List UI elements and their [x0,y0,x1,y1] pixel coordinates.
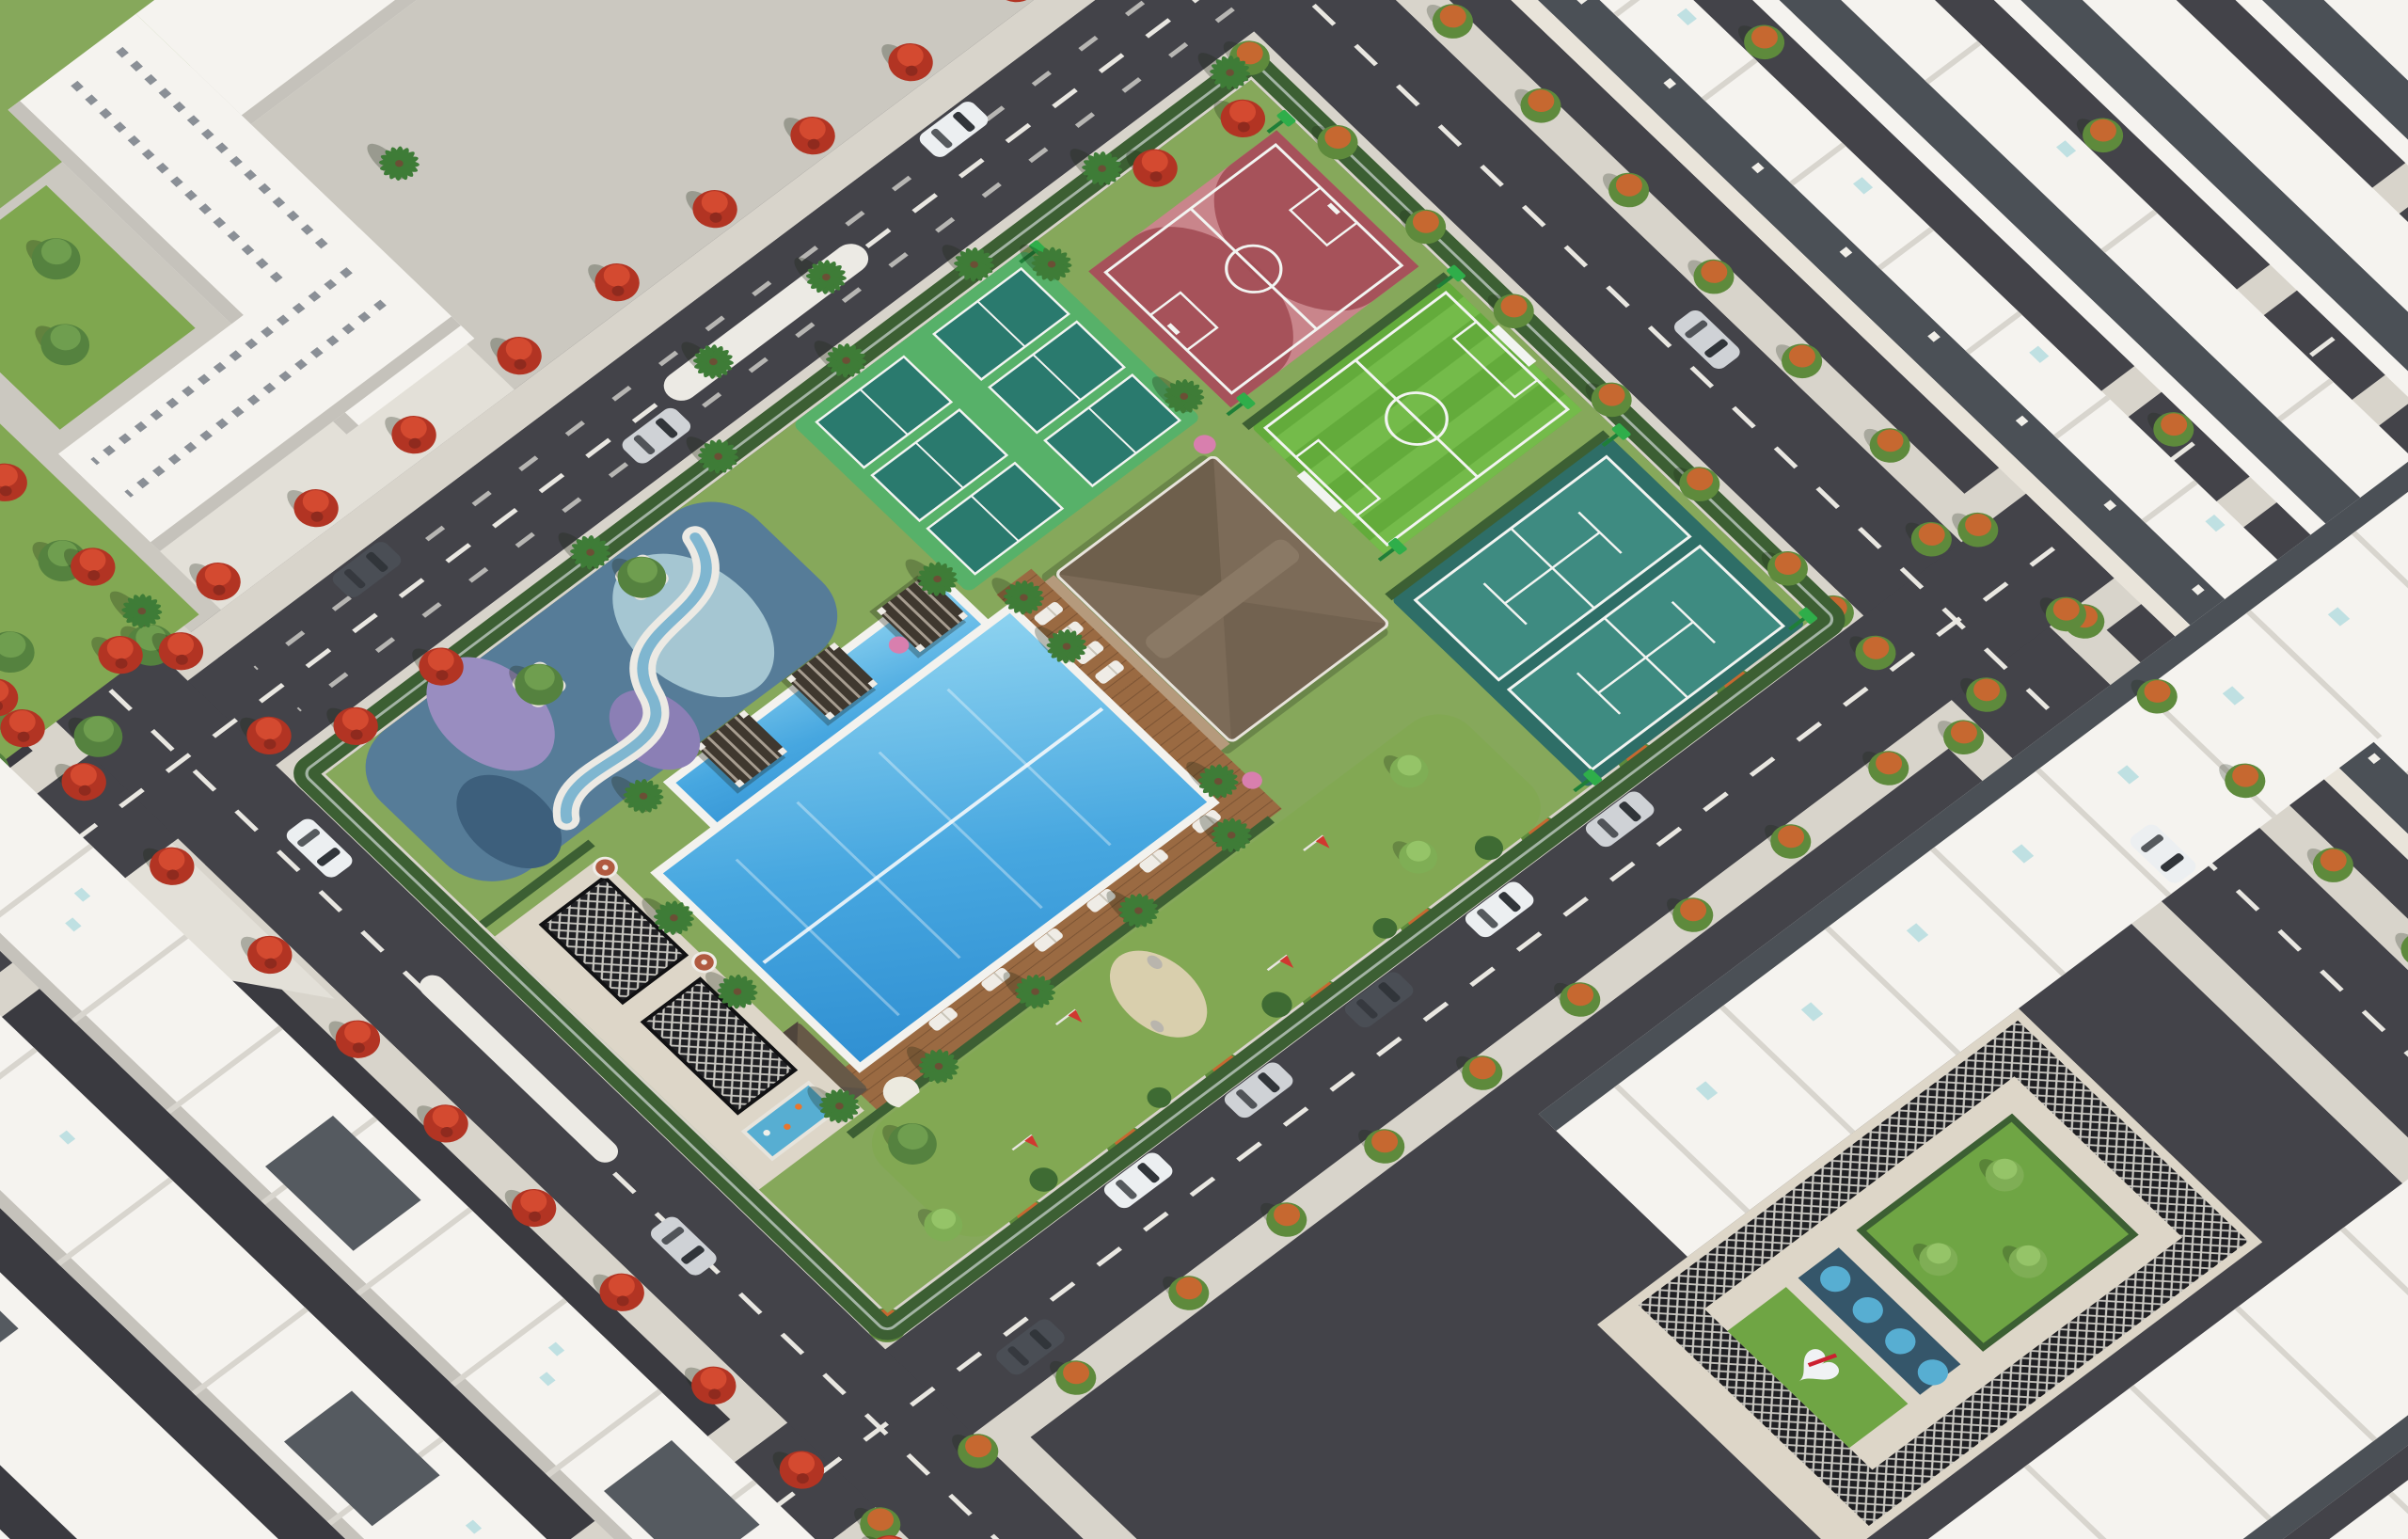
aerial-render [0,0,2408,1539]
masterplan [0,0,2408,1539]
scene-canvas [0,0,2408,1539]
